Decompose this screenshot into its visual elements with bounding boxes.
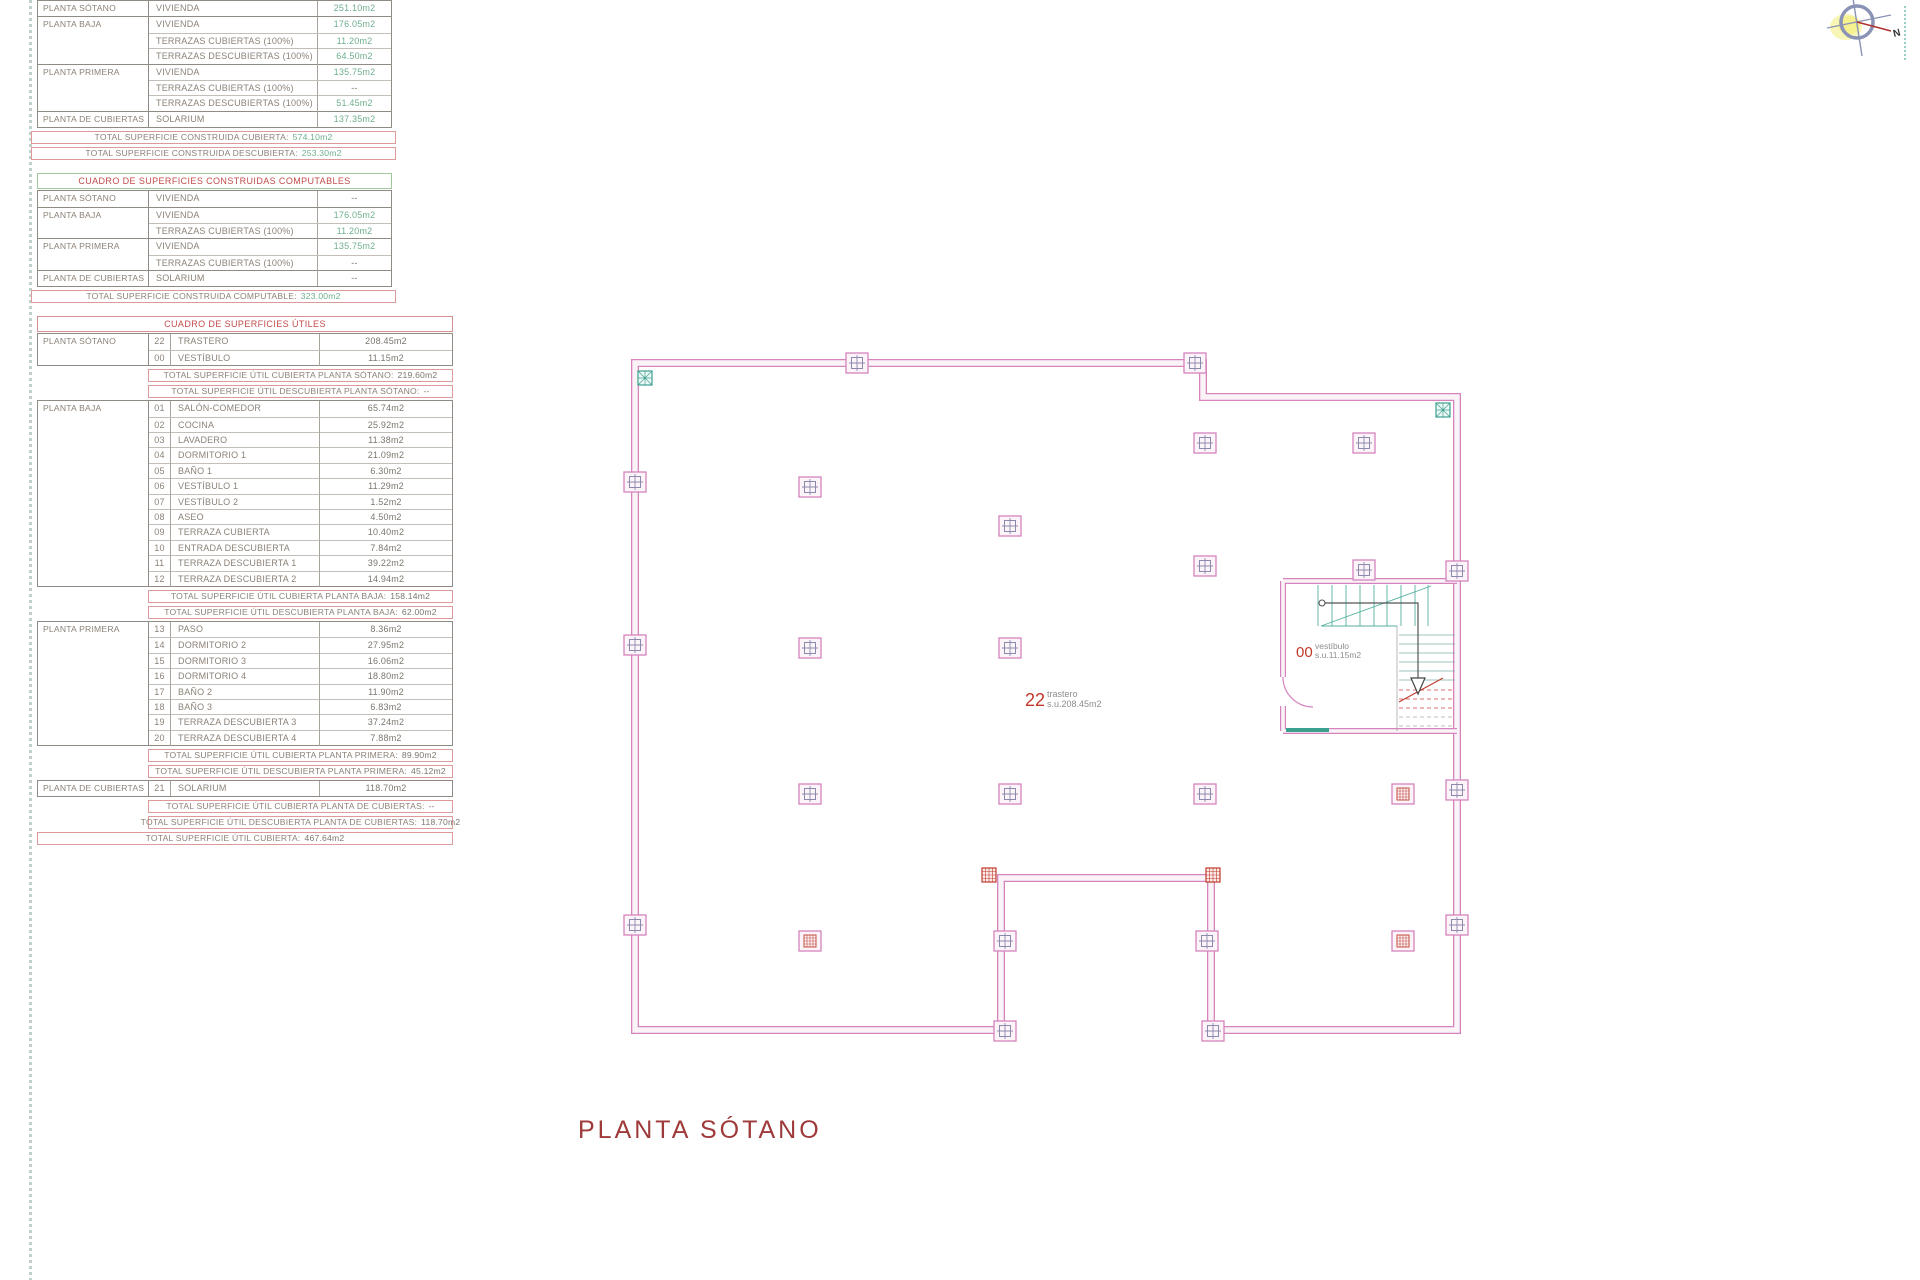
concept-cell: TERRAZA DESCUBIERTA 3 <box>171 715 319 730</box>
value-cell: 6.83m2 <box>319 700 452 715</box>
value-cell: 1.52m2 <box>319 495 452 510</box>
total-bar: TOTAL SUPERFICIE CONSTRUIDA DESCUBIERTA:… <box>31 147 396 160</box>
table-superficies-computables: CUADRO DE SUPERFICIES CONSTRUIDAS COMPUT… <box>37 173 392 303</box>
room-label-vestibulo: 00 vestíbulo s.u.11.15m2 <box>1296 641 1361 661</box>
value-cell: 7.84m2 <box>319 541 452 556</box>
table-row: 12TERRAZA DESCUBIERTA 214.94m2 <box>149 571 452 586</box>
total-bar: TOTAL SUPERFICIE ÚTIL DESCUBIERTA PLANTA… <box>148 385 453 398</box>
room-number-cell: 01 <box>149 401 171 416</box>
concept-cell: TERRAZA CUBIERTA <box>171 525 319 540</box>
table-row: TERRAZAS CUBIERTAS (100%)11.20m2 <box>149 223 391 238</box>
plan-title: PLANTA SÓTANO <box>578 1116 822 1145</box>
table-row: 17BAÑO 211.90m2 <box>149 684 452 699</box>
value-cell: -- <box>317 81 391 96</box>
value-cell: 4.50m2 <box>319 510 452 525</box>
total-value: 118.70m2 <box>421 816 460 829</box>
concept-cell: TRASTERO <box>171 334 319 349</box>
total-value: 574.10m2 <box>293 131 333 144</box>
concept-cell: VIVIENDA <box>149 239 317 254</box>
value-cell: 11.15m2 <box>319 351 452 366</box>
table-row: SOLARIUM137.35m2 <box>149 112 391 127</box>
room-number-cell: 07 <box>149 495 171 510</box>
room-number-cell: 13 <box>149 622 171 637</box>
table-title: CUADRO DE SUPERFICIES CONSTRUIDAS COMPUT… <box>37 173 392 189</box>
concept-cell: SALÓN-COMEDOR <box>171 401 319 416</box>
table-row: 06VESTÍBULO 111.29m2 <box>149 478 452 493</box>
room-number-cell: 00 <box>149 351 171 366</box>
table-row: VIVIENDA176.05m2 <box>149 17 391 32</box>
concept-cell: LAVADERO <box>171 433 319 448</box>
value-cell: 176.05m2 <box>317 208 391 223</box>
total-value: -- <box>429 800 435 813</box>
concept-cell: DORMITORIO 3 <box>171 654 319 669</box>
concept-cell: TERRAZA DESCUBIERTA 4 <box>171 731 319 746</box>
table-row: 19TERRAZA DESCUBIERTA 337.24m2 <box>149 714 452 729</box>
total-bar: TOTAL SUPERFICIE CONSTRUIDA COMPUTABLE:3… <box>31 290 396 303</box>
room-number-cell: 21 <box>149 781 171 796</box>
table-group: PLANTA BAJA01SALÓN-COMEDOR65.74m202COCIN… <box>37 400 453 587</box>
room-number-cell: 19 <box>149 715 171 730</box>
room-number-cell: 17 <box>149 685 171 700</box>
value-cell: 10.40m2 <box>319 525 452 540</box>
value-cell: 176.05m2 <box>317 17 391 32</box>
total-value: 323.00m2 <box>301 290 341 303</box>
total-label: TOTAL SUPERFICIE ÚTIL DESCUBIERTA PLANTA… <box>164 606 398 619</box>
planta-label: PLANTA BAJA <box>38 208 149 239</box>
concept-cell: VESTÍBULO 2 <box>171 495 319 510</box>
planta-label: PLANTA PRIMERA <box>38 622 149 745</box>
value-cell: 11.90m2 <box>319 685 452 700</box>
concept-cell: BAÑO 1 <box>171 464 319 479</box>
table-row: VIVIENDA135.75m2 <box>149 239 391 254</box>
plan-sheet: PLANTA SÓTANOVIVIENDA251.10m2PLANTA BAJA… <box>0 0 1920 1280</box>
total-bar: TOTAL SUPERFICIE ÚTIL CUBIERTA PLANTA DE… <box>148 800 453 813</box>
value-cell: 11.20m2 <box>317 224 391 239</box>
table-group: PLANTA BAJAVIVIENDA176.05m2TERRAZAS CUBI… <box>37 207 392 240</box>
room-number-cell: 16 <box>149 669 171 684</box>
value-cell: 65.74m2 <box>319 401 452 416</box>
concept-cell: VIVIENDA <box>149 208 317 223</box>
value-cell: 118.70m2 <box>319 781 452 796</box>
concept-cell: BAÑO 3 <box>171 700 319 715</box>
table-row: TERRAZAS CUBIERTAS (100%)11.20m2 <box>149 33 391 48</box>
room-number-cell: 09 <box>149 525 171 540</box>
value-cell: 11.38m2 <box>319 433 452 448</box>
room-number-cell: 08 <box>149 510 171 525</box>
total-bar: TOTAL SUPERFICIE ÚTIL CUBIERTA:467.64m2 <box>37 832 453 845</box>
concept-cell: ENTRADA DESCUBIERTA <box>171 541 319 556</box>
table-row: 03LAVADERO11.38m2 <box>149 432 452 447</box>
concept-cell: VIVIENDA <box>149 1 317 16</box>
table-row: 01SALÓN-COMEDOR65.74m2 <box>149 401 452 416</box>
planta-label: PLANTA BAJA <box>38 17 149 63</box>
total-value: 62.00m2 <box>402 606 437 619</box>
concept-cell: TERRAZA DESCUBIERTA 2 <box>171 572 319 587</box>
room-number-cell: 22 <box>149 334 171 349</box>
value-cell: 25.92m2 <box>319 418 452 433</box>
table-group: PLANTA DE CUBIERTASSOLARIUM-- <box>37 270 392 287</box>
table-superficies-utiles: CUADRO DE SUPERFICIES ÚTILESPLANTA SÓTAN… <box>37 316 453 845</box>
building-outline <box>635 363 1457 1030</box>
planta-label: PLANTA PRIMERA <box>38 65 149 111</box>
table-row: VIVIENDA176.05m2 <box>149 208 391 223</box>
total-label: TOTAL SUPERFICIE ÚTIL DESCUBIERTA PLANTA… <box>155 765 407 778</box>
total-bar: TOTAL SUPERFICIE ÚTIL CUBIERTA PLANTA SÓ… <box>148 369 453 382</box>
table-row: 20TERRAZA DESCUBIERTA 47.88m2 <box>149 730 452 745</box>
table-row: VIVIENDA-- <box>149 191 391 206</box>
concept-cell: DORMITORIO 2 <box>171 638 319 653</box>
value-cell: -- <box>317 271 391 286</box>
room-number-cell: 11 <box>149 556 171 571</box>
total-bar: TOTAL SUPERFICIE ÚTIL DESCUBIERTA PLANTA… <box>148 606 453 619</box>
concept-cell: SOLARIUM <box>149 112 317 127</box>
value-cell: 51.45m2 <box>317 96 391 111</box>
table-row: 04DORMITORIO 121.09m2 <box>149 447 452 462</box>
table-group: PLANTA PRIMERA13PASO8.36m214DORMITORIO 2… <box>37 621 453 746</box>
planta-label: PLANTA DE CUBIERTAS <box>38 271 149 286</box>
concept-cell: VESTÍBULO 1 <box>171 479 319 494</box>
table-row: 07VESTÍBULO 21.52m2 <box>149 494 452 509</box>
table-group: PLANTA SÓTANOVIVIENDA251.10m2 <box>37 0 392 17</box>
concept-cell: DORMITORIO 1 <box>171 448 319 463</box>
total-label: TOTAL SUPERFICIE ÚTIL CUBIERTA PLANTA DE… <box>166 800 424 813</box>
total-label: TOTAL SUPERFICIE CONSTRUIDA CUBIERTA: <box>95 131 289 144</box>
room-number-00: 00 <box>1296 644 1313 661</box>
total-label: TOTAL SUPERFICIE ÚTIL DESCUBIERTA PLANTA… <box>171 385 419 398</box>
table-row: 02COCINA25.92m2 <box>149 417 452 432</box>
value-cell: 37.24m2 <box>319 715 452 730</box>
table-row: 00VESTÍBULO11.15m2 <box>149 350 452 365</box>
total-value: 219.60m2 <box>398 369 438 382</box>
room-number-cell: 15 <box>149 654 171 669</box>
table-row: 10ENTRADA DESCUBIERTA7.84m2 <box>149 540 452 555</box>
concept-cell: VIVIENDA <box>149 65 317 80</box>
value-cell: 64.50m2 <box>317 49 391 64</box>
total-label: TOTAL SUPERFICIE CONSTRUIDA DESCUBIERTA: <box>85 147 297 160</box>
table-row: 22TRASTERO208.45m2 <box>149 334 452 349</box>
room-number-cell: 20 <box>149 731 171 746</box>
value-cell: 18.80m2 <box>319 669 452 684</box>
room-area-trastero: s.u.208.45m2 <box>1047 699 1102 709</box>
table-superficies-construidas: PLANTA SÓTANOVIVIENDA251.10m2PLANTA BAJA… <box>37 0 392 160</box>
table-group: PLANTA PRIMERAVIVIENDA135.75m2TERRAZAS C… <box>37 238 392 271</box>
table-group: PLANTA SÓTANOVIVIENDA-- <box>37 190 392 207</box>
room-number-cell: 10 <box>149 541 171 556</box>
room-number-22: 22 <box>1025 690 1045 710</box>
value-cell: 251.10m2 <box>317 1 391 16</box>
stair-lower-run <box>1399 678 1455 726</box>
total-label: TOTAL SUPERFICIE ÚTIL DESCUBIERTA PLANTA… <box>141 816 417 829</box>
value-cell: 135.75m2 <box>317 65 391 80</box>
table-group: PLANTA SÓTANO22TRASTERO208.45m200VESTÍBU… <box>37 333 453 366</box>
total-bar: TOTAL SUPERFICIE ÚTIL CUBIERTA PLANTA PR… <box>148 749 453 762</box>
table-row: 16DORMITORIO 418.80m2 <box>149 668 452 683</box>
concept-cell: BAÑO 2 <box>171 685 319 700</box>
total-label: TOTAL SUPERFICIE ÚTIL CUBIERTA: <box>146 832 301 845</box>
table-row: 14DORMITORIO 227.95m2 <box>149 637 452 652</box>
value-cell: 21.09m2 <box>319 448 452 463</box>
planta-label: PLANTA DE CUBIERTAS <box>38 781 149 796</box>
concept-cell: TERRAZAS CUBIERTAS (100%) <box>149 34 317 49</box>
room-number-cell: 06 <box>149 479 171 494</box>
concept-cell: VESTÍBULO <box>171 351 319 366</box>
table-row: 05BAÑO 16.30m2 <box>149 463 452 478</box>
room-number-cell: 05 <box>149 464 171 479</box>
total-value: -- <box>424 385 430 398</box>
table-row: SOLARIUM-- <box>149 271 391 286</box>
table-row: VIVIENDA135.75m2 <box>149 65 391 80</box>
value-cell: 27.95m2 <box>319 638 452 653</box>
concept-cell: TERRAZAS DESCUBIERTAS (100%) <box>149 96 317 111</box>
total-bar: TOTAL SUPERFICIE ÚTIL CUBIERTA PLANTA BA… <box>148 590 453 603</box>
planta-label: PLANTA DE CUBIERTAS <box>38 112 149 127</box>
left-margin-fine-print <box>29 0 32 1280</box>
room-label-trastero: 22 trastero s.u.208.45m2 <box>1025 689 1102 710</box>
table-row: 08ASEO4.50m2 <box>149 509 452 524</box>
table-group: PLANTA PRIMERAVIVIENDA135.75m2TERRAZAS C… <box>37 64 392 112</box>
concept-cell: VIVIENDA <box>149 191 317 206</box>
floor-plan-drawing: 22 trastero s.u.208.45m2 00 vestíbulo s.… <box>615 340 1475 1060</box>
concept-cell: SOLARIUM <box>171 781 319 796</box>
concept-cell: SOLARIUM <box>149 271 317 286</box>
concept-cell: TERRAZA DESCUBIERTA 1 <box>171 556 319 571</box>
table-row: TERRAZAS DESCUBIERTAS (100%)51.45m2 <box>149 95 391 110</box>
room-number-cell: 14 <box>149 638 171 653</box>
value-cell: 135.75m2 <box>317 239 391 254</box>
columns <box>624 353 1468 1041</box>
total-label: TOTAL SUPERFICIE CONSTRUIDA COMPUTABLE: <box>86 290 296 303</box>
value-cell: 16.06m2 <box>319 654 452 669</box>
total-bar: TOTAL SUPERFICIE ÚTIL DESCUBIERTA PLANTA… <box>148 816 453 829</box>
north-compass-icon: N <box>1815 0 1915 70</box>
value-cell: 208.45m2 <box>319 334 452 349</box>
room-number-cell: 03 <box>149 433 171 448</box>
total-value: 158.14m2 <box>390 590 430 603</box>
corner-markers <box>638 371 1450 882</box>
table-row: 13PASO8.36m2 <box>149 622 452 637</box>
total-label: TOTAL SUPERFICIE ÚTIL CUBIERTA PLANTA PR… <box>164 749 398 762</box>
room-area-vestibulo: s.u.11.15m2 <box>1315 650 1361 660</box>
total-label: TOTAL SUPERFICIE ÚTIL CUBIERTA PLANTA BA… <box>171 590 386 603</box>
room-number-cell: 18 <box>149 700 171 715</box>
concept-cell: ASEO <box>171 510 319 525</box>
table-group: PLANTA DE CUBIERTAS21SOLARIUM118.70m2 <box>37 780 453 797</box>
planta-label: PLANTA PRIMERA <box>38 239 149 270</box>
total-bar: TOTAL SUPERFICIE ÚTIL DESCUBIERTA PLANTA… <box>148 765 453 778</box>
concept-cell: TERRAZAS CUBIERTAS (100%) <box>149 256 317 271</box>
table-row: 15DORMITORIO 316.06m2 <box>149 653 452 668</box>
total-value: 467.64m2 <box>305 832 345 845</box>
table-row: VIVIENDA251.10m2 <box>149 1 391 16</box>
concept-cell: PASO <box>171 622 319 637</box>
room-name-trastero: trastero <box>1047 689 1078 699</box>
table-row: TERRAZAS DESCUBIERTAS (100%)64.50m2 <box>149 48 391 63</box>
concept-cell: TERRAZAS DESCUBIERTAS (100%) <box>149 49 317 64</box>
table-title: CUADRO DE SUPERFICIES ÚTILES <box>37 316 453 332</box>
total-label: TOTAL SUPERFICIE ÚTIL CUBIERTA PLANTA SÓ… <box>164 369 394 382</box>
table-row: TERRAZAS CUBIERTAS (100%)-- <box>149 255 391 270</box>
planta-label: PLANTA BAJA <box>38 401 149 586</box>
concept-cell: TERRAZAS CUBIERTAS (100%) <box>149 224 317 239</box>
value-cell: 137.35m2 <box>317 112 391 127</box>
right-margin-fine-print <box>1904 6 1906 60</box>
value-cell: 8.36m2 <box>319 622 452 637</box>
concept-cell: TERRAZAS CUBIERTAS (100%) <box>149 81 317 96</box>
value-cell: -- <box>317 191 391 206</box>
value-cell: 14.94m2 <box>319 572 452 587</box>
table-group: PLANTA BAJAVIVIENDA176.05m2TERRAZAS CUBI… <box>37 16 392 64</box>
table-row: 18BAÑO 36.83m2 <box>149 699 452 714</box>
total-value: 253.30m2 <box>302 147 342 160</box>
table-row: 11TERRAZA DESCUBIERTA 139.22m2 <box>149 555 452 570</box>
north-label: N <box>1892 27 1902 39</box>
room-number-cell: 04 <box>149 448 171 463</box>
table-group: PLANTA DE CUBIERTASSOLARIUM137.35m2 <box>37 111 392 128</box>
value-cell: -- <box>317 256 391 271</box>
planta-label: PLANTA SÓTANO <box>38 334 149 365</box>
total-value: 89.90m2 <box>402 749 437 762</box>
door-swing-arc <box>1283 677 1313 707</box>
table-row: 09TERRAZA CUBIERTA10.40m2 <box>149 524 452 539</box>
concept-cell: COCINA <box>171 418 319 433</box>
value-cell: 11.20m2 <box>317 34 391 49</box>
table-row: TERRAZAS CUBIERTAS (100%)-- <box>149 80 391 95</box>
concept-cell: DORMITORIO 4 <box>171 669 319 684</box>
value-cell: 39.22m2 <box>319 556 452 571</box>
room-number-cell: 02 <box>149 418 171 433</box>
value-cell: 6.30m2 <box>319 464 452 479</box>
planta-label: PLANTA SÓTANO <box>38 191 149 206</box>
total-bar: TOTAL SUPERFICIE CONSTRUIDA CUBIERTA:574… <box>31 131 396 144</box>
planta-label: PLANTA SÓTANO <box>38 1 149 16</box>
value-cell: 7.88m2 <box>319 731 452 746</box>
surface-tables-panel: PLANTA SÓTANOVIVIENDA251.10m2PLANTA BAJA… <box>37 1 497 848</box>
value-cell: 11.29m2 <box>319 479 452 494</box>
room-number-cell: 12 <box>149 572 171 587</box>
total-value: 45.12m2 <box>411 765 446 778</box>
table-row: 21SOLARIUM118.70m2 <box>149 781 452 796</box>
concept-cell: VIVIENDA <box>149 17 317 32</box>
